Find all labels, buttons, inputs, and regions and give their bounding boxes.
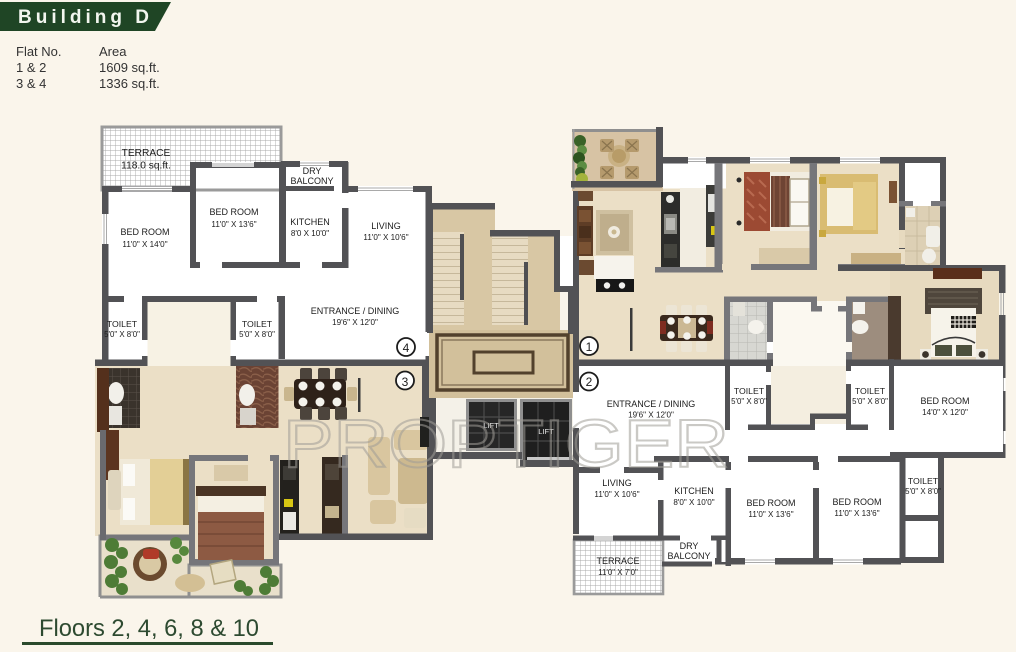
svg-text:Area: Area bbox=[99, 44, 127, 59]
svg-text:5'0" X 8'0": 5'0" X 8'0" bbox=[239, 330, 275, 339]
svg-text:3 & 4: 3 & 4 bbox=[16, 76, 46, 91]
svg-text:11'0" X 13'6": 11'0" X 13'6" bbox=[748, 510, 793, 519]
svg-text:8'0 X 10'0": 8'0 X 10'0" bbox=[291, 229, 329, 238]
svg-text:LIVING: LIVING bbox=[371, 221, 401, 231]
svg-text:BED ROOM: BED ROOM bbox=[832, 497, 881, 507]
svg-text:1336 sq.ft.: 1336 sq.ft. bbox=[99, 76, 160, 91]
svg-text:5'0" X 8'0": 5'0" X 8'0" bbox=[731, 397, 767, 406]
svg-text:ENTRANCE / DINING: ENTRANCE / DINING bbox=[311, 306, 400, 316]
svg-text:PROPTIGER: PROPTIGER bbox=[283, 406, 729, 482]
svg-text:1609 sq.ft.: 1609 sq.ft. bbox=[99, 60, 160, 75]
svg-text:11'0" X 13'6": 11'0" X 13'6" bbox=[211, 220, 256, 229]
svg-text:Building D: Building D bbox=[18, 7, 153, 28]
svg-text:TERRACE: TERRACE bbox=[596, 556, 639, 566]
svg-text:11'0" X 7'0": 11'0" X 7'0" bbox=[598, 568, 638, 577]
svg-text:11'0" X 10'6": 11'0" X 10'6" bbox=[363, 233, 408, 242]
svg-text:11'0" X 14'0": 11'0" X 14'0" bbox=[122, 240, 167, 249]
svg-text:BALCONY: BALCONY bbox=[667, 551, 710, 561]
svg-text:5'0" X 8'0": 5'0" X 8'0" bbox=[104, 330, 140, 339]
svg-text:DRY: DRY bbox=[303, 166, 322, 176]
svg-text:11'0" X 13'6": 11'0" X 13'6" bbox=[834, 509, 879, 518]
svg-text:BED ROOM: BED ROOM bbox=[209, 207, 258, 217]
svg-text:11'0" X 10'6": 11'0" X 10'6" bbox=[594, 490, 639, 499]
svg-text:KITCHEN: KITCHEN bbox=[674, 486, 714, 496]
svg-text:TERRACE: TERRACE bbox=[122, 148, 171, 159]
svg-text:4: 4 bbox=[403, 341, 410, 355]
svg-text:DRY: DRY bbox=[680, 541, 699, 551]
svg-text:118.0 sq.ft.: 118.0 sq.ft. bbox=[121, 161, 171, 172]
svg-text:8'0" X 10'0": 8'0" X 10'0" bbox=[673, 498, 714, 507]
svg-text:14'0" X 12'0": 14'0" X 12'0" bbox=[922, 408, 968, 417]
svg-text:TOILET: TOILET bbox=[734, 386, 765, 396]
svg-text:Floors 2, 4, 6, 8 & 10: Floors 2, 4, 6, 8 & 10 bbox=[39, 615, 259, 642]
svg-text:TOILET: TOILET bbox=[107, 319, 138, 329]
svg-text:1: 1 bbox=[586, 340, 593, 354]
svg-text:Flat No.: Flat No. bbox=[16, 44, 62, 59]
svg-text:5'0" X 8'0": 5'0" X 8'0" bbox=[905, 487, 941, 496]
svg-text:1 & 2: 1 & 2 bbox=[16, 60, 46, 75]
svg-text:BALCONY: BALCONY bbox=[290, 176, 333, 186]
svg-text:BED ROOM: BED ROOM bbox=[746, 498, 795, 508]
svg-text:KITCHEN: KITCHEN bbox=[290, 217, 330, 227]
svg-text:5'0" X 8'0": 5'0" X 8'0" bbox=[852, 397, 888, 406]
svg-text:BED ROOM: BED ROOM bbox=[920, 396, 969, 406]
svg-text:TOILET: TOILET bbox=[242, 319, 273, 329]
svg-text:2: 2 bbox=[586, 375, 593, 389]
svg-text:BED ROOM: BED ROOM bbox=[120, 227, 169, 237]
svg-text:3: 3 bbox=[402, 375, 409, 389]
svg-text:TOILET: TOILET bbox=[908, 476, 939, 486]
svg-text:19'6" X 12'0": 19'6" X 12'0" bbox=[332, 318, 378, 327]
svg-text:TOILET: TOILET bbox=[855, 386, 886, 396]
